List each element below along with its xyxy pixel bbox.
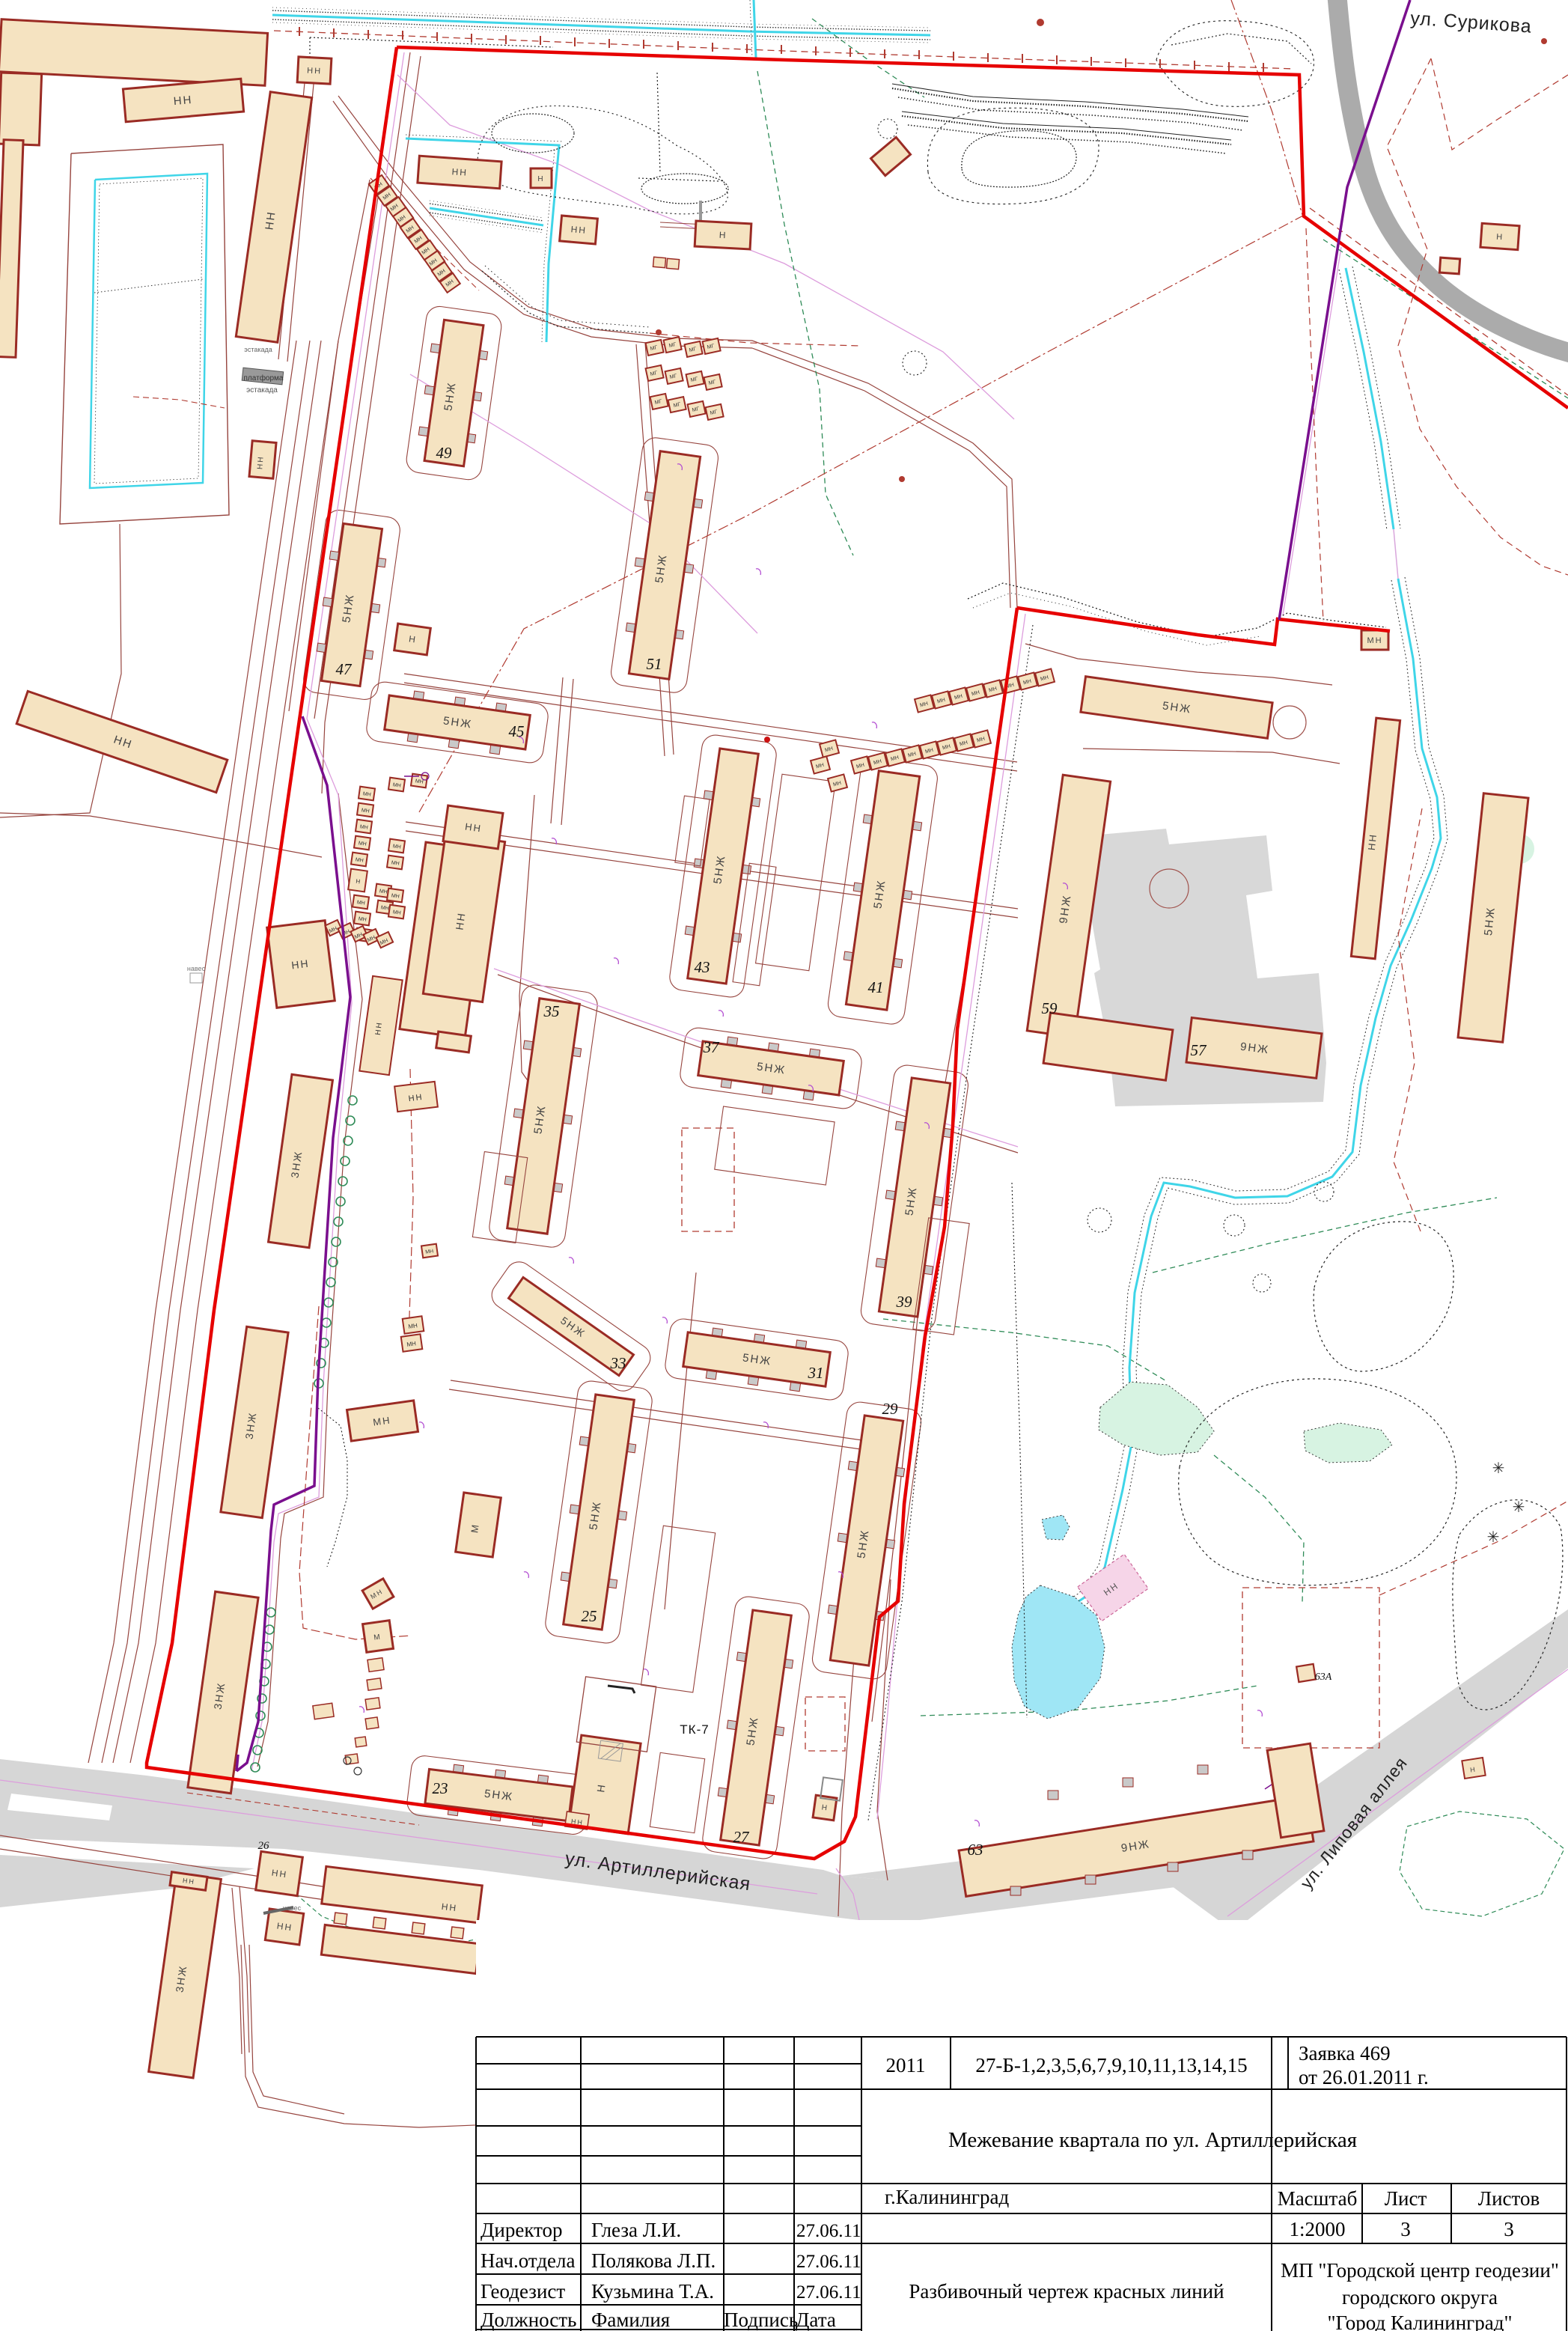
svg-text:Н: Н <box>719 230 727 241</box>
svg-text:23: 23 <box>433 1779 448 1797</box>
svg-text:✳: ✳ <box>1487 1529 1501 1546</box>
svg-text:27.06.11: 27.06.11 <box>796 2221 861 2241</box>
svg-text:2011: 2011 <box>886 2054 926 2076</box>
svg-text:Н: Н <box>1470 1765 1477 1773</box>
svg-text:НН: НН <box>307 66 322 76</box>
svg-text:Глеза Л.И.: Глеза Л.И. <box>591 2219 681 2241</box>
svg-text:М: М <box>469 1523 481 1534</box>
svg-text:31: 31 <box>808 1364 824 1382</box>
svg-text:59: 59 <box>1042 999 1058 1017</box>
svg-text:Листов: Листов <box>1478 2187 1540 2210</box>
svg-text:НН: НН <box>271 1868 288 1880</box>
svg-text:✳: ✳ <box>1492 1460 1507 1477</box>
svg-text:Лист: Лист <box>1385 2187 1427 2210</box>
svg-text:НН: НН <box>464 821 483 835</box>
svg-text:35: 35 <box>543 1002 560 1020</box>
svg-text:63: 63 <box>968 1841 983 1859</box>
svg-text:НН: НН <box>290 957 310 972</box>
svg-text:платформа: платформа <box>244 374 284 383</box>
svg-text:от 26.01.2011 г.: от 26.01.2011 г. <box>1299 2066 1429 2088</box>
svg-text:27.06.11: 27.06.11 <box>796 2282 861 2303</box>
svg-text:навес: навес <box>187 965 206 972</box>
svg-text:57: 57 <box>1191 1041 1208 1059</box>
svg-text:НН: НН <box>1366 832 1379 850</box>
svg-text:"Город Калининград": "Город Калининград" <box>1328 2312 1513 2331</box>
svg-text:✳: ✳ <box>1513 1499 1527 1516</box>
svg-text:НН: НН <box>453 911 467 930</box>
svg-text:НН: НН <box>441 1901 458 1913</box>
svg-text:Н: Н <box>537 175 544 183</box>
svg-text:эстакада: эстакада <box>246 386 278 394</box>
svg-text:27: 27 <box>733 1828 751 1846</box>
svg-text:Фамилия: Фамилия <box>591 2309 670 2331</box>
svg-text:39: 39 <box>896 1293 913 1311</box>
svg-text:МП "Городской центр геодезии": МП "Городской центр геодезии" <box>1281 2259 1559 2282</box>
svg-text:Межевание квартала по ул. Арти: Межевание квартала по ул. Артиллерийская <box>948 2128 1357 2152</box>
svg-text:Нач.отдела: Нач.отдела <box>481 2249 576 2272</box>
svg-text:НН: НН <box>570 224 587 236</box>
svg-text:26: 26 <box>258 1840 270 1852</box>
svg-text:НН: НН <box>263 210 278 231</box>
svg-text:МН: МН <box>406 1340 417 1348</box>
svg-text:Геодезист: Геодезист <box>481 2280 565 2303</box>
svg-text:эстакада: эстакада <box>244 346 272 353</box>
svg-text:Н: Н <box>821 1803 829 1812</box>
svg-text:29: 29 <box>882 1400 899 1418</box>
svg-text:47: 47 <box>336 660 353 678</box>
svg-text:25: 25 <box>582 1607 597 1625</box>
svg-text:45: 45 <box>509 722 525 740</box>
svg-text:Кузьмина Т.А.: Кузьмина Т.А. <box>591 2280 714 2303</box>
svg-text:51: 51 <box>647 655 662 673</box>
svg-text:Дата: Дата <box>796 2309 836 2331</box>
svg-text:НН: НН <box>276 1921 293 1934</box>
svg-text:МН: МН <box>1367 636 1382 645</box>
svg-text:Разбивочный чертеж красных лин: Разбивочный чертеж красных линий <box>909 2280 1224 2303</box>
svg-text:М: М <box>373 1633 382 1642</box>
svg-text:27.06.11: 27.06.11 <box>796 2252 861 2272</box>
svg-text:Полякова Л.П.: Полякова Л.П. <box>591 2249 716 2272</box>
svg-text:43: 43 <box>695 958 710 976</box>
svg-text:Заявка 469: Заявка 469 <box>1299 2042 1391 2065</box>
svg-text:Подпись: Подпись <box>724 2309 798 2331</box>
svg-text:37: 37 <box>703 1038 721 1056</box>
svg-text:3: 3 <box>1504 2218 1514 2240</box>
svg-text:НН: НН <box>256 455 266 469</box>
svg-text:Н: Н <box>594 1782 608 1793</box>
svg-text:3: 3 <box>1400 2218 1411 2240</box>
svg-text:НН: НН <box>451 166 468 177</box>
svg-text:49: 49 <box>436 444 453 462</box>
svg-text:НН: НН <box>408 1093 424 1103</box>
svg-text:Масштаб: Масштаб <box>1278 2187 1358 2210</box>
svg-text:НН: НН <box>173 94 193 108</box>
svg-text:27-Б-1,2,3,5,6,7,9,10,11,13,14: 27-Б-1,2,3,5,6,7,9,10,11,13,14,15 <box>975 2054 1247 2076</box>
svg-text:г.Калининград: г.Калининград <box>885 2186 1009 2208</box>
svg-text:Н: Н <box>1496 233 1504 243</box>
svg-text:МН: МН <box>408 1322 418 1330</box>
svg-text:63А: 63А <box>1315 1672 1332 1683</box>
svg-text:41: 41 <box>868 978 884 996</box>
svg-text:Директор: Директор <box>481 2219 563 2241</box>
svg-text:Должность: Должность <box>481 2309 576 2331</box>
svg-text:Н: Н <box>408 633 418 645</box>
svg-text:городского округа: городского округа <box>1342 2286 1498 2309</box>
svg-text:1:2000: 1:2000 <box>1289 2218 1345 2240</box>
svg-text:ТК-7: ТК-7 <box>680 1722 709 1737</box>
svg-text:33: 33 <box>610 1354 626 1372</box>
